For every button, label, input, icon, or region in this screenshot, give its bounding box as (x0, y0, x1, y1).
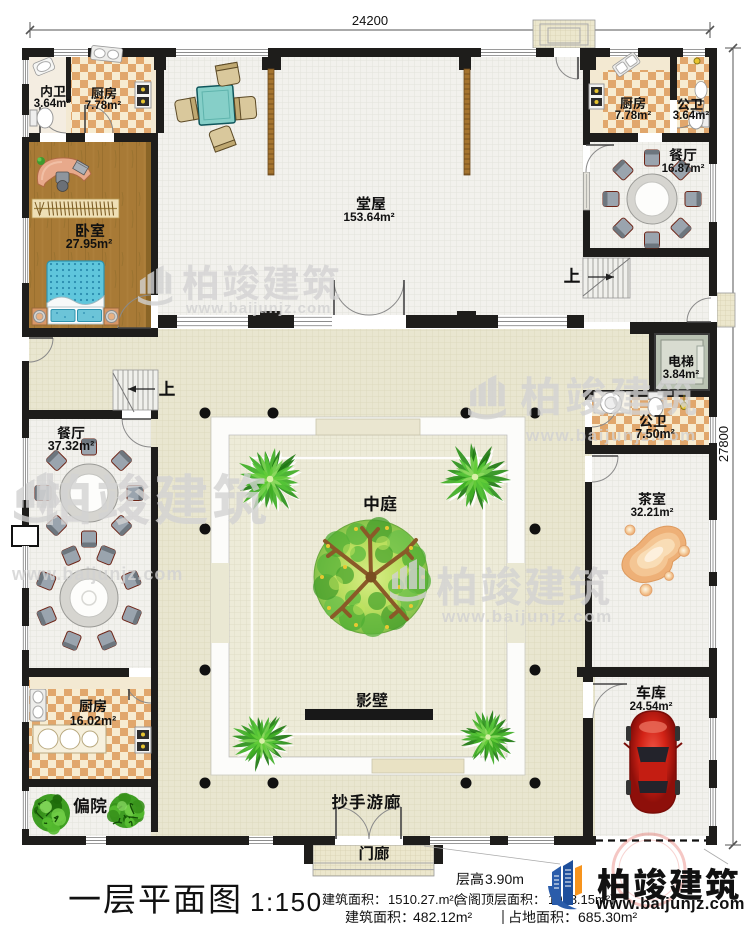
svg-text:www.baijunjz.com: www.baijunjz.com (11, 564, 183, 584)
svg-text:27.95m²: 27.95m² (66, 237, 113, 251)
svg-text:16.02m²: 16.02m² (70, 714, 117, 728)
svg-text:www.baijunjz.com: www.baijunjz.com (185, 300, 331, 317)
svg-text:16.87m²: 16.87m² (662, 163, 705, 175)
svg-text:1510.27.m²(: 1510.27.m²( (388, 892, 459, 907)
svg-text:www.baijunjz.com: www.baijunjz.com (595, 895, 745, 913)
svg-text:7.50m²: 7.50m² (635, 427, 675, 441)
svg-text:482.12m²: 482.12m² (413, 909, 472, 925)
svg-text:3.90m: 3.90m (485, 871, 524, 887)
svg-text:7.78m²: 7.78m² (85, 100, 122, 112)
svg-text:37.32m²: 37.32m² (48, 439, 95, 453)
svg-text:7.78m²: 7.78m² (615, 110, 652, 122)
svg-text:153.64m²: 153.64m² (343, 210, 394, 224)
svg-text:3.64m²: 3.64m² (34, 98, 71, 110)
svg-text:24.54m²: 24.54m² (630, 701, 673, 713)
svg-text:32.21m²: 32.21m² (631, 507, 674, 519)
svg-text:27800: 27800 (716, 426, 731, 462)
svg-text:24200: 24200 (352, 13, 388, 28)
svg-text:3.64m²: 3.64m² (673, 110, 710, 122)
svg-text:1:150: 1:150 (250, 887, 323, 917)
svg-text:3.84m²: 3.84m² (663, 369, 700, 381)
svg-text:www.baijunjz.com: www.baijunjz.com (441, 607, 613, 626)
